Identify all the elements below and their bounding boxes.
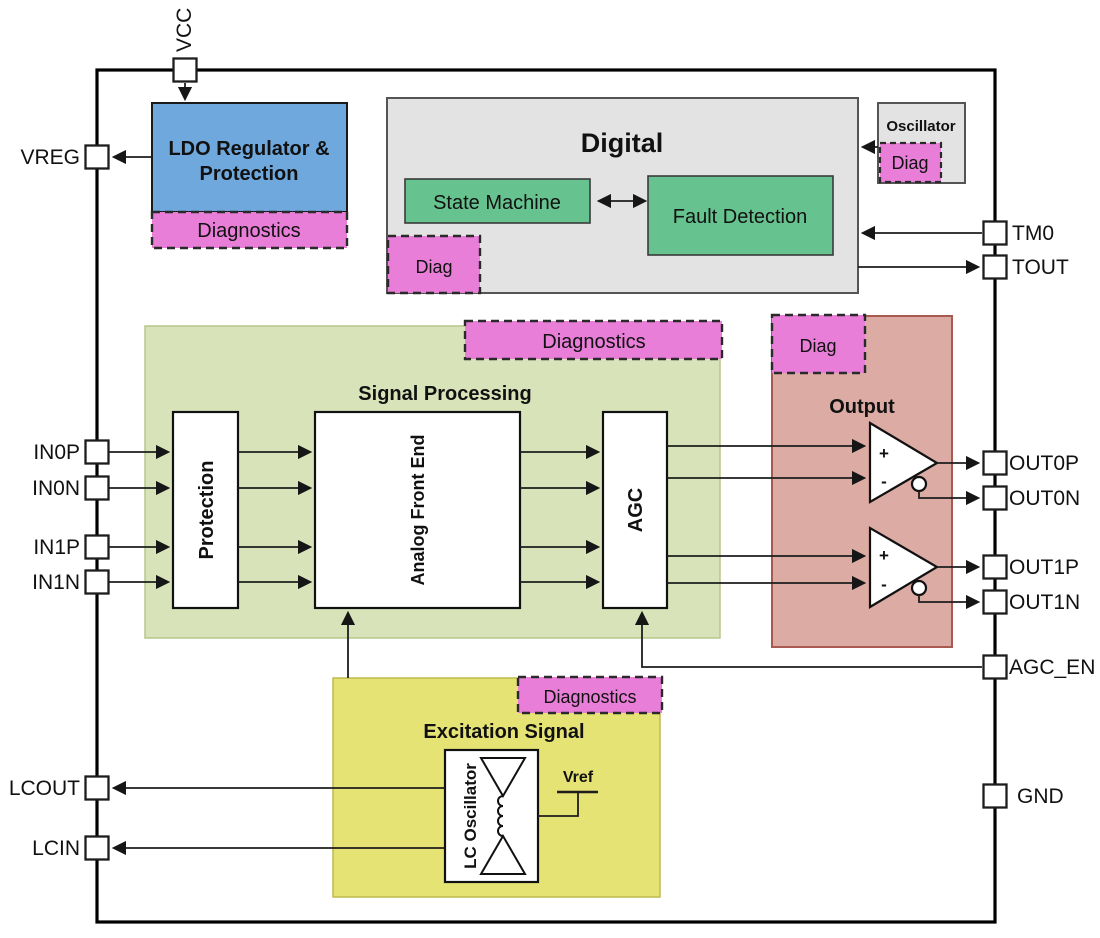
pin-tout — [984, 256, 1007, 279]
block-protection-label: Protection — [196, 461, 218, 560]
pin-vreg — [86, 146, 109, 169]
pin-in1n-label: IN1N — [32, 571, 80, 594]
block-lc-oscillator-label: LC Oscillator — [461, 763, 480, 869]
pin-agc-en-label: AGC_EN — [1009, 656, 1095, 679]
block-oscillator-diag-label: Diag — [891, 153, 928, 173]
pin-in0n — [86, 477, 109, 500]
pin-in1n — [86, 571, 109, 594]
opamp-0-minus: - — [881, 472, 887, 491]
block-state-machine-label: State Machine — [433, 192, 561, 214]
opamp-0-invert-bubble — [912, 477, 926, 491]
block-ldo-label-line2: Protection — [200, 163, 299, 185]
block-agc-label: AGC — [625, 488, 647, 532]
opamp-1-plus: + — [879, 546, 889, 565]
pin-lcout — [86, 777, 109, 800]
pin-vreg-label: VREG — [20, 146, 80, 169]
diagram-canvas: Digital State Machine Fault Detection Di… — [0, 0, 1100, 933]
block-fault-detection-label: Fault Detection — [673, 206, 808, 228]
vref-label: Vref — [563, 769, 594, 786]
pin-out0n — [984, 487, 1007, 510]
pin-out1p-label: OUT1P — [1009, 556, 1079, 579]
block-ldo-diag-label: Diagnostics — [197, 220, 300, 242]
pin-out0p — [984, 452, 1007, 475]
pin-lcin-label: LCIN — [32, 837, 80, 860]
opamp-1-minus: - — [881, 575, 887, 594]
pin-tm0-label: TM0 — [1012, 222, 1054, 245]
pin-out0n-label: OUT0N — [1009, 487, 1080, 510]
region-excitation-title: Excitation Signal — [423, 721, 584, 743]
pin-in1p — [86, 536, 109, 559]
pin-tm0 — [984, 222, 1007, 245]
block-oscillator-label: Oscillator — [886, 118, 955, 135]
pin-lcin — [86, 837, 109, 860]
block-digital-diag-label: Diag — [415, 257, 452, 277]
opamp-0-plus: + — [879, 444, 889, 463]
pin-in0p-label: IN0P — [33, 441, 80, 464]
pin-vcc-label: VCC — [173, 8, 196, 52]
pin-vcc — [174, 59, 197, 82]
block-analog-front-end-label: Analog Front End — [408, 435, 428, 586]
block-diagram: Digital State Machine Fault Detection Di… — [0, 0, 1100, 933]
pin-out1n — [984, 591, 1007, 614]
pin-gnd — [984, 785, 1007, 808]
block-sp-diagnostics-label: Diagnostics — [542, 331, 645, 353]
pin-in0p — [86, 441, 109, 464]
opamp-1-invert-bubble — [912, 581, 926, 595]
pin-in0n-label: IN0N — [32, 477, 80, 500]
pin-out1p — [984, 556, 1007, 579]
region-signal-processing-title: Signal Processing — [358, 383, 531, 405]
pin-tout-label: TOUT — [1012, 256, 1069, 279]
pin-gnd-label: GND — [1017, 785, 1064, 808]
pin-agc-en — [984, 656, 1007, 679]
block-output-diag-label: Diag — [799, 336, 836, 356]
block-ldo-label-line1: LDO Regulator & — [168, 138, 329, 160]
pin-in1p-label: IN1P — [33, 536, 80, 559]
region-output-title: Output — [829, 396, 895, 418]
block-digital-title: Digital — [581, 128, 664, 158]
pin-out0p-label: OUT0P — [1009, 452, 1079, 475]
pin-lcout-label: LCOUT — [9, 777, 80, 800]
pin-out1n-label: OUT1N — [1009, 591, 1080, 614]
block-excitation-diag-label: Diagnostics — [543, 687, 636, 707]
